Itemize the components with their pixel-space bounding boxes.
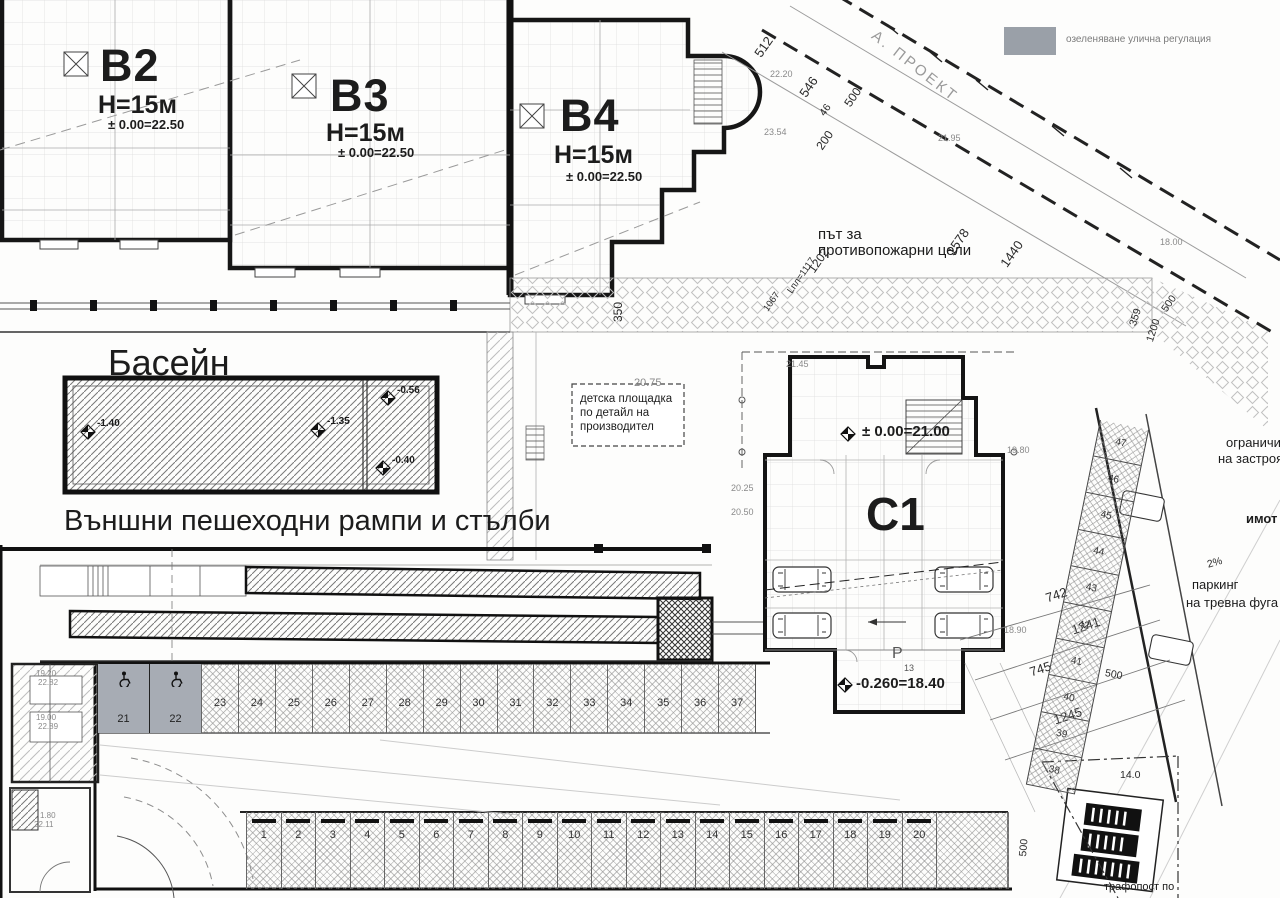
wheel-stop — [907, 819, 931, 823]
elev-2050: 20.50 — [731, 508, 754, 517]
parking-space-number: 10 — [568, 829, 580, 841]
parking-space-number: 41 — [1070, 655, 1083, 668]
wheel-stop — [562, 819, 586, 823]
parking-space: 5 — [384, 812, 419, 889]
parking-space: 20 — [902, 812, 937, 889]
building-c1-level: ± 0.00=21.00 — [862, 424, 950, 440]
parking-space-accessible: 22 — [149, 664, 201, 733]
parking-space: 4 — [350, 812, 385, 889]
building-c1-label: С1 — [866, 490, 925, 538]
elev-2220: 22.20 — [770, 70, 793, 79]
parking-space: 11 — [591, 812, 626, 889]
pool-label: Басейн — [108, 344, 230, 382]
parking-row-middle: 21 22 232425262728293031323334353637 — [97, 664, 756, 733]
wheel-stop — [666, 819, 690, 823]
parking-space-number: 36 — [694, 697, 706, 709]
parking-space-number: 28 — [399, 697, 411, 709]
wheel-stop — [700, 819, 724, 823]
wheel-stop — [631, 819, 655, 823]
elev-2282: 22.82 — [38, 679, 58, 687]
elev-2075: 20.75 — [634, 378, 662, 390]
parking-space: 15 — [729, 812, 764, 889]
parking-row-bottom-extension — [936, 812, 1009, 889]
wheel-stop — [286, 819, 310, 823]
parking-space-number: 27 — [362, 697, 374, 709]
parking-space-number: 45 — [1100, 509, 1113, 522]
parking-space: 13 — [660, 812, 695, 889]
elev-2211: 22.11 — [34, 821, 53, 829]
parking-space-number: 43 — [1085, 582, 1098, 595]
playground-label-1: детска площадка — [580, 392, 672, 407]
parking-space: 2 — [281, 812, 316, 889]
playground-label-3: производител — [580, 420, 654, 435]
parking-space: 27 — [349, 664, 386, 733]
wheel-stop — [355, 819, 379, 823]
parking-space: 9 — [522, 812, 557, 889]
parking-space-number: 1 — [261, 829, 267, 841]
parking-space-accessible: 21 — [97, 664, 149, 733]
dim-14: 14.0 — [1120, 770, 1140, 781]
wheel-stop — [735, 819, 759, 823]
elev-2354: 23.54 — [764, 128, 787, 137]
parking-space-number: 20 — [913, 829, 925, 841]
parking-space-number: 34 — [620, 697, 632, 709]
parking-space-number: 42 — [1077, 618, 1090, 631]
parking-space-number: 6 — [433, 829, 439, 841]
grass-parking-label-2: на тревна фуга — [1186, 596, 1278, 610]
parking-space-number: 15 — [741, 829, 753, 841]
parking-space: 36 — [681, 664, 718, 733]
legend-label: озеленяване улична регулация — [1066, 35, 1211, 46]
parking-space-number: 17 — [810, 829, 822, 841]
parking-space: 1 — [246, 812, 281, 889]
parking-space-number: 24 — [251, 697, 263, 709]
site-plan: озеленяване улична регулация А. ПРОЕКТ В… — [0, 0, 1280, 898]
parking-space-number: 21 — [117, 713, 129, 725]
building-b4-height: Н=15м — [554, 142, 633, 168]
wheel-stop — [424, 819, 448, 823]
elev-2145: 21.45 — [786, 360, 809, 369]
wheelchair-icon — [116, 670, 132, 687]
parking-space-number: 2 — [295, 829, 301, 841]
parking-space-number: 46 — [1107, 473, 1120, 486]
parking-space: 17 — [798, 812, 833, 889]
parking-space-number: 37 — [731, 697, 743, 709]
parking-space-number: 11 — [603, 829, 614, 841]
parking-space-number: 39 — [1055, 728, 1068, 741]
parking-space-number: 7 — [468, 829, 474, 841]
parking-space-number: 44 — [1092, 546, 1105, 559]
c1-parking-count: 13 — [904, 664, 914, 673]
parking-space-number: 13 — [672, 829, 684, 841]
wheel-stop — [493, 819, 517, 823]
parking-space: 28 — [386, 664, 423, 733]
parking-space-number: 4 — [364, 829, 370, 841]
parking-space: 30 — [460, 664, 497, 733]
building-b2-height: Н=15м — [98, 92, 177, 118]
pool-mark-2: -1.35 — [327, 417, 350, 428]
elev-1890: 18.90 — [1004, 626, 1027, 635]
playground-label-2: по детайл на — [580, 406, 649, 421]
building-b3-height: Н=15м — [326, 120, 405, 146]
parking-space-number: 29 — [435, 697, 447, 709]
fire-road-label-1: път за — [818, 227, 862, 243]
parking-space: 34 — [607, 664, 644, 733]
grass-parking-label-1: паркинг — [1192, 578, 1238, 592]
parking-space: 35 — [644, 664, 681, 733]
parking-space: 31 — [497, 664, 534, 733]
parking-space: 14 — [695, 812, 730, 889]
property-label: имот — [1246, 512, 1277, 526]
parking-space-number: 5 — [399, 829, 405, 841]
elev-2025: 20.25 — [731, 484, 754, 493]
parking-space-number: 18 — [844, 829, 856, 841]
pool-mark-1: -1.40 — [97, 419, 120, 430]
parking-space-number: 32 — [546, 697, 558, 709]
elev-2289: 22.89 — [38, 723, 58, 731]
building-b3-label: В3 — [330, 72, 390, 119]
limit-label-2: на застрояв — [1218, 452, 1280, 466]
parking-space-number: 38 — [1048, 764, 1061, 777]
c1-parking-level: -0.260=18.40 — [856, 676, 945, 692]
building-b4-label: В4 — [560, 92, 620, 139]
wheel-stop — [769, 819, 793, 823]
parking-space: 3 — [315, 812, 350, 889]
building-b2-level: ± 0.00=22.50 — [108, 118, 184, 132]
limit-label-1: ограничит — [1226, 436, 1280, 450]
parking-space-number: 3 — [330, 829, 336, 841]
parking-space-number: 33 — [583, 697, 595, 709]
parking-space: 29 — [423, 664, 460, 733]
wheel-stop — [528, 819, 552, 823]
parking-space-number: 8 — [502, 829, 508, 841]
parking-space-number: 14 — [706, 829, 718, 841]
parking-space: 33 — [570, 664, 607, 733]
elev-2195: 21.95 — [938, 134, 961, 143]
parking-space-number: 26 — [325, 697, 337, 709]
building-b2-label: В2 — [100, 42, 160, 89]
parking-space-number: 9 — [537, 829, 543, 841]
wheel-stop — [252, 819, 276, 823]
pool-mark-4: -0.40 — [392, 456, 415, 467]
wheel-stop — [838, 819, 862, 823]
parking-space: 24 — [238, 664, 275, 733]
parking-spaces-middle: 232425262728293031323334353637 — [201, 664, 755, 733]
parking-space: 25 — [275, 664, 312, 733]
transformer-label: трафопост по — [1104, 882, 1174, 894]
parking-space: 7 — [453, 812, 488, 889]
wheel-stop — [597, 819, 621, 823]
parking-space-number: 19 — [879, 829, 891, 841]
elev-1980: 19.80 — [1007, 446, 1030, 455]
parking-space-number: 25 — [288, 697, 300, 709]
parking-space-number: 22 — [169, 713, 181, 725]
building-b3-level: ± 0.00=22.50 — [338, 146, 414, 160]
dim-350: 350 — [612, 302, 625, 322]
wheelchair-icon — [168, 670, 184, 687]
parking-space-number: 35 — [657, 697, 669, 709]
parking-space-number: 31 — [509, 697, 521, 709]
parking-space-number: 16 — [775, 829, 787, 841]
dim-500-bottom: 500 — [1018, 839, 1031, 857]
wheel-stop — [321, 819, 345, 823]
pool-mark-3: -0.56 — [397, 386, 420, 397]
legend-swatch — [1004, 27, 1056, 55]
parking-space-number: 23 — [214, 697, 226, 709]
ramps-caption: Външни пешеходни рампи и стълби — [64, 506, 551, 536]
parking-space: 6 — [419, 812, 454, 889]
parking-space-number: 30 — [472, 697, 484, 709]
parking-space: 18 — [833, 812, 868, 889]
parking-space: 19 — [867, 812, 902, 889]
parking-space: 8 — [488, 812, 523, 889]
parking-space: 16 — [764, 812, 799, 889]
wheel-stop — [804, 819, 828, 823]
building-b4-level: ± 0.00=22.50 — [566, 170, 642, 184]
parking-space: 23 — [201, 664, 238, 733]
parking-row-bottom: 1 2 3 4 5 6 7 8 9 10 11 12 13 14 — [246, 812, 936, 889]
wheel-stop — [390, 819, 414, 823]
parking-space-number: 40 — [1062, 691, 1075, 704]
parking-space-number: 12 — [637, 829, 649, 841]
wheel-stop — [873, 819, 897, 823]
wheel-stop — [459, 819, 483, 823]
site-plan-linework — [0, 0, 1280, 898]
c1-parking-letter: Р — [892, 646, 903, 663]
parking-space-number: 47 — [1114, 436, 1127, 449]
parking-space: 26 — [312, 664, 349, 733]
parking-space: 37 — [718, 664, 755, 733]
parking-space: 12 — [626, 812, 661, 889]
parking-space: 32 — [533, 664, 570, 733]
parking-space: 10 — [557, 812, 592, 889]
elev-1800: 18.00 — [1160, 238, 1183, 247]
